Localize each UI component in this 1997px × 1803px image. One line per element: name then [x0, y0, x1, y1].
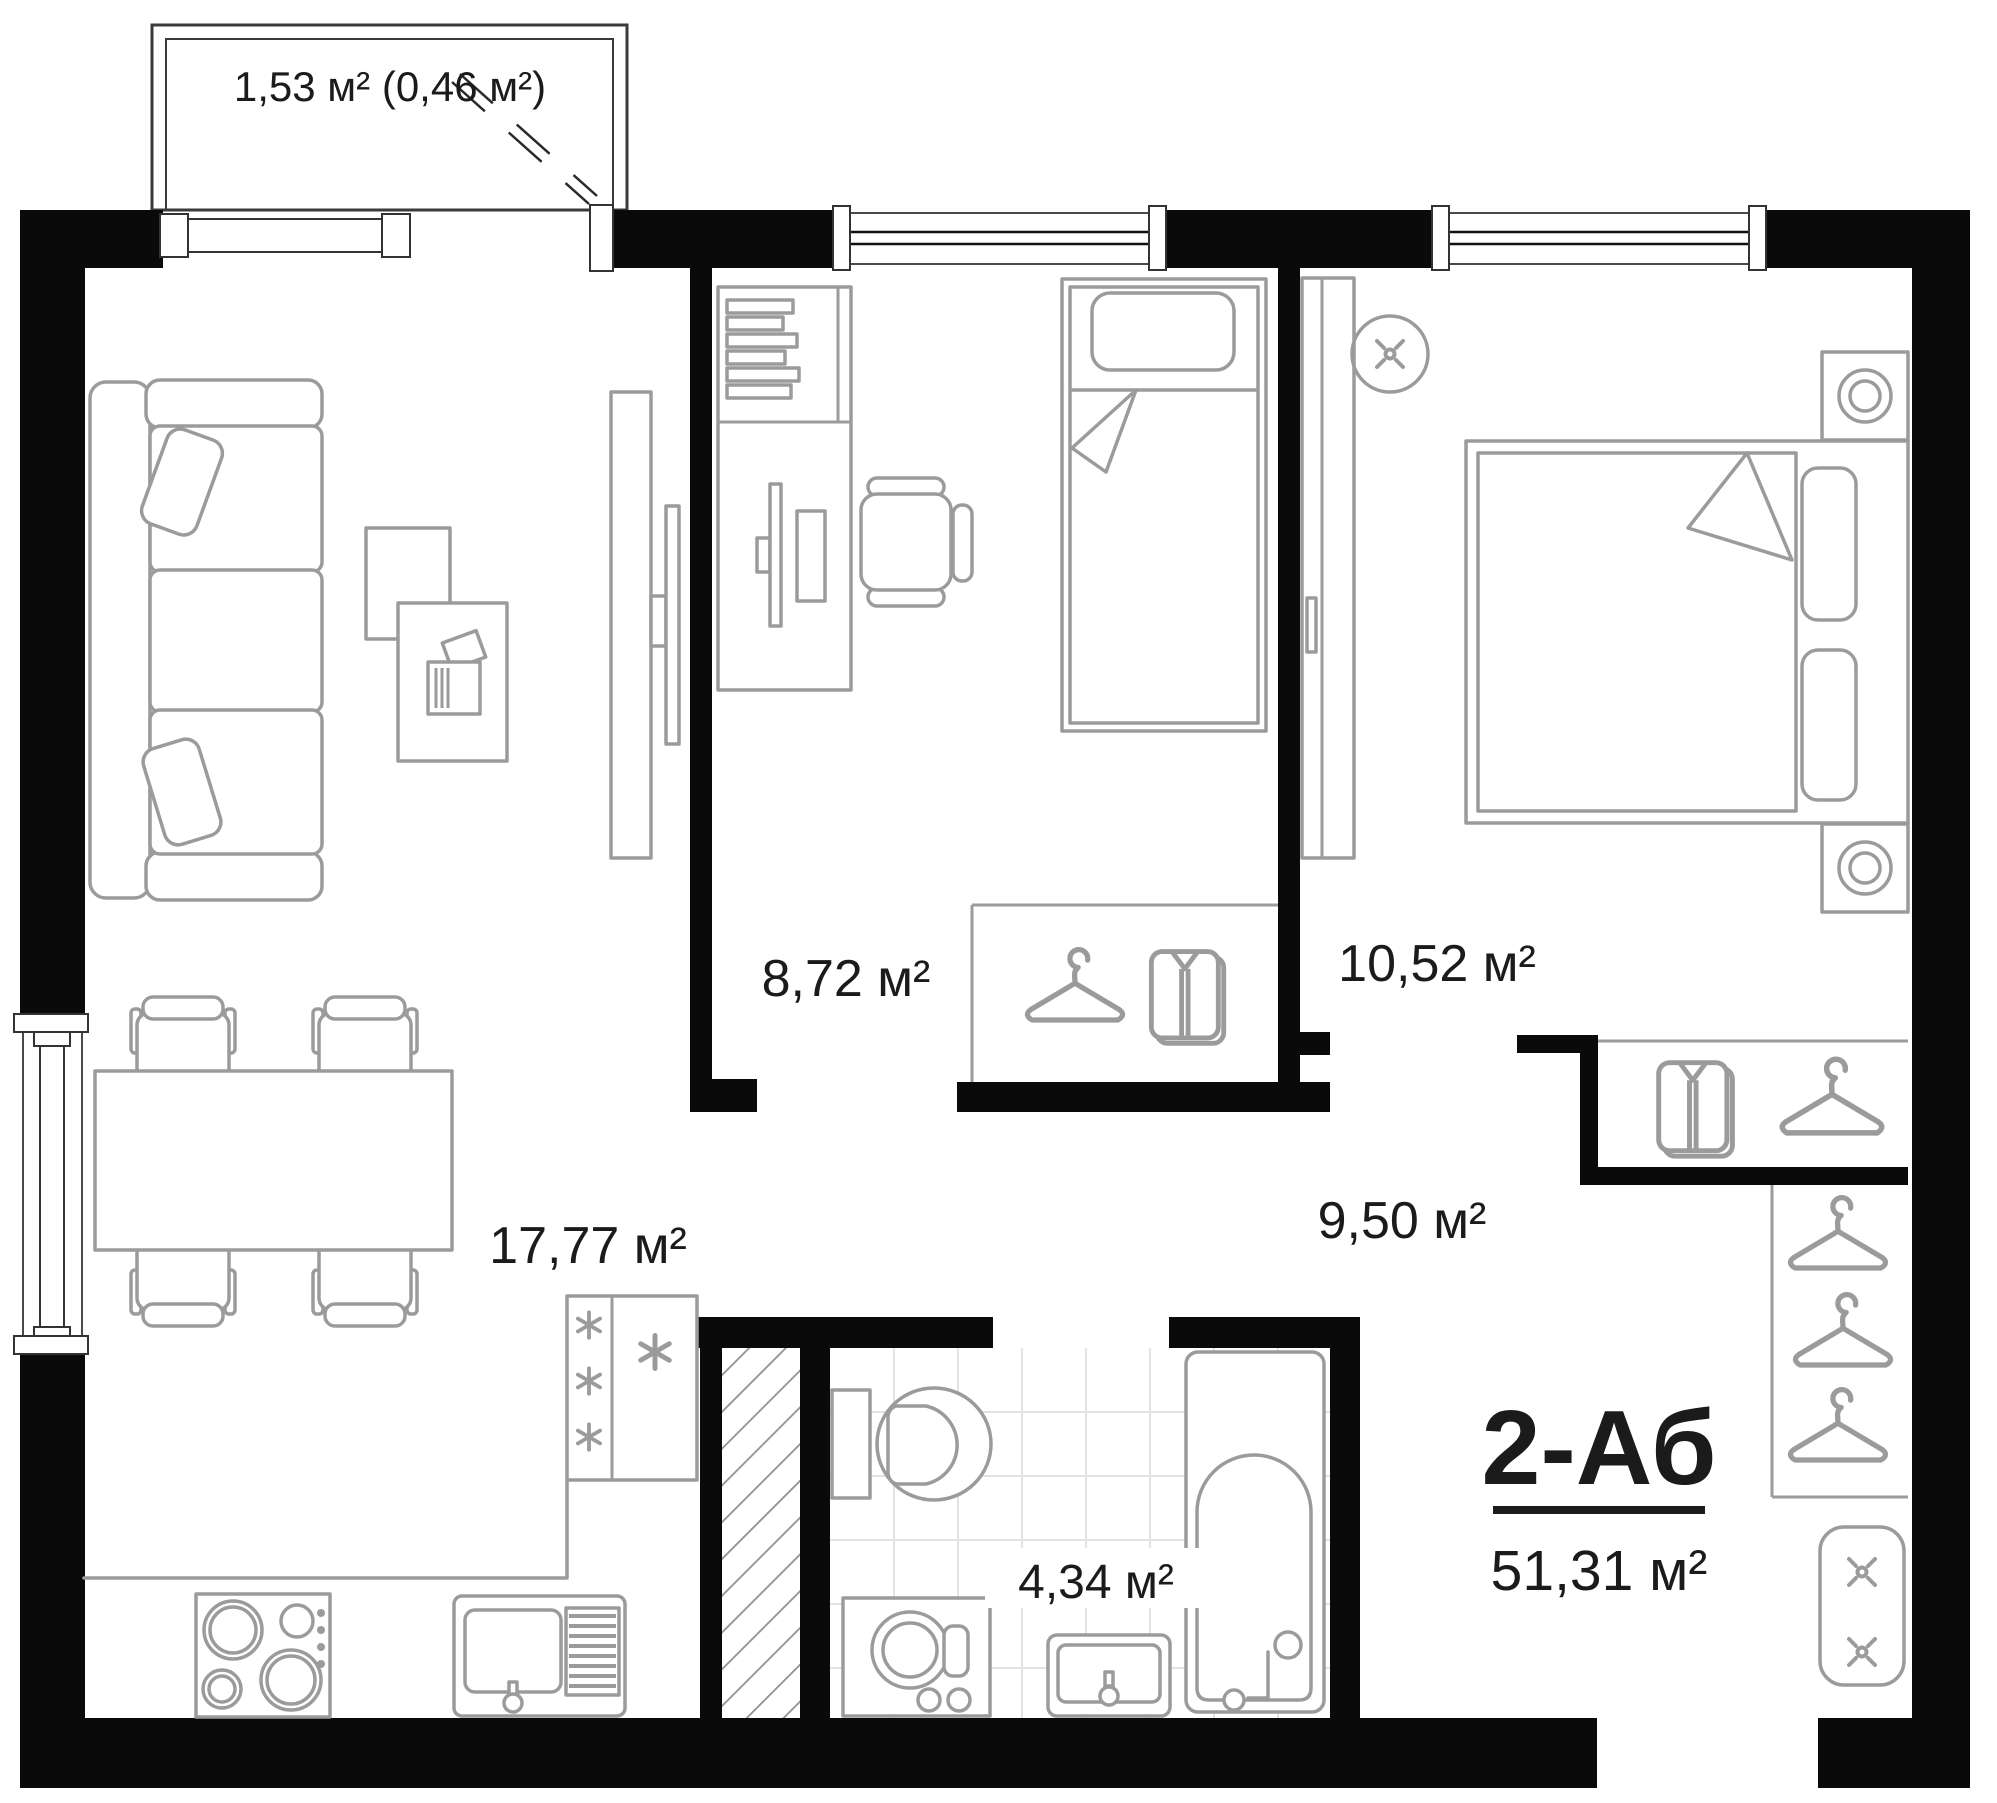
balcony	[152, 25, 627, 210]
keyboard-icon	[797, 511, 825, 601]
bedroom-closet	[972, 905, 1278, 1082]
fridge	[567, 1296, 697, 1480]
wardrobe	[1302, 278, 1354, 858]
kitchen	[84, 1296, 697, 1717]
toilet	[832, 1388, 991, 1500]
dining-chair	[313, 1240, 417, 1326]
shirt-icon	[1151, 952, 1223, 1044]
stove	[196, 1594, 330, 1717]
bedroom-area-label: 8,72 м²	[762, 950, 931, 1008]
bathroom-sink	[1048, 1635, 1170, 1716]
double-bed	[1466, 441, 1908, 823]
title-block: 2-Аб 51,31 м²	[1482, 1389, 1717, 1603]
unit-title: 2-Аб	[1482, 1389, 1717, 1507]
kitchen-sink	[454, 1596, 625, 1716]
desk	[718, 287, 851, 690]
hanger-icon	[1790, 1390, 1885, 1460]
shirt-icon	[1659, 1063, 1733, 1157]
radiator	[1820, 1527, 1904, 1685]
master-bedroom	[1302, 278, 1908, 912]
balcony-window	[160, 205, 613, 271]
floor-plan: 1,53 м² (0,46 м²) 8,72 м² 10,52 м² 17,77…	[0, 0, 1997, 1803]
bathtub	[1186, 1352, 1324, 1712]
living-room-window	[14, 1014, 88, 1354]
kitchen-counter	[84, 1480, 567, 1578]
hanger-icon	[1795, 1295, 1890, 1365]
monitor-icon	[757, 538, 770, 572]
total-area: 51,31 м²	[1491, 1539, 1708, 1603]
hanger-icon	[1782, 1059, 1882, 1133]
nightstand	[1822, 352, 1908, 440]
svg-text:4,34 м²: 4,34 м²	[1018, 1556, 1174, 1609]
hallway-closet	[1598, 1041, 1908, 1156]
monitor-icon	[770, 484, 781, 626]
nightstand	[1822, 824, 1908, 912]
dining-set	[95, 997, 452, 1326]
hanger-icon	[1027, 950, 1122, 1020]
title-underline	[1493, 1506, 1705, 1514]
ventilation-shaft	[722, 1348, 800, 1718]
bedroom-window	[833, 206, 1166, 270]
dining-table	[95, 1071, 452, 1250]
master-bedroom-area-label: 10,52 м²	[1338, 935, 1536, 993]
balcony-area-label: 1,53 м² (0,46 м²)	[234, 63, 546, 110]
bathroom-area-label: 4,34 м²	[985, 1548, 1210, 1609]
hallway-area-label: 9,50 м²	[1318, 1192, 1487, 1250]
sofa	[90, 380, 322, 900]
master-bedroom-window	[1432, 206, 1766, 270]
living-area-label: 17,77 м²	[489, 1217, 687, 1275]
hallway-wardrobe	[1772, 1185, 1908, 1497]
bathroom	[830, 1348, 1330, 1718]
washing-machine	[843, 1598, 990, 1716]
ceiling-light-icon	[1352, 316, 1428, 392]
tv-unit	[611, 392, 679, 858]
dining-chair	[131, 1240, 235, 1326]
hanger-icon	[1790, 1198, 1885, 1268]
office-chair	[861, 478, 972, 606]
single-bed	[1062, 279, 1266, 731]
coffee-tables	[366, 528, 507, 761]
